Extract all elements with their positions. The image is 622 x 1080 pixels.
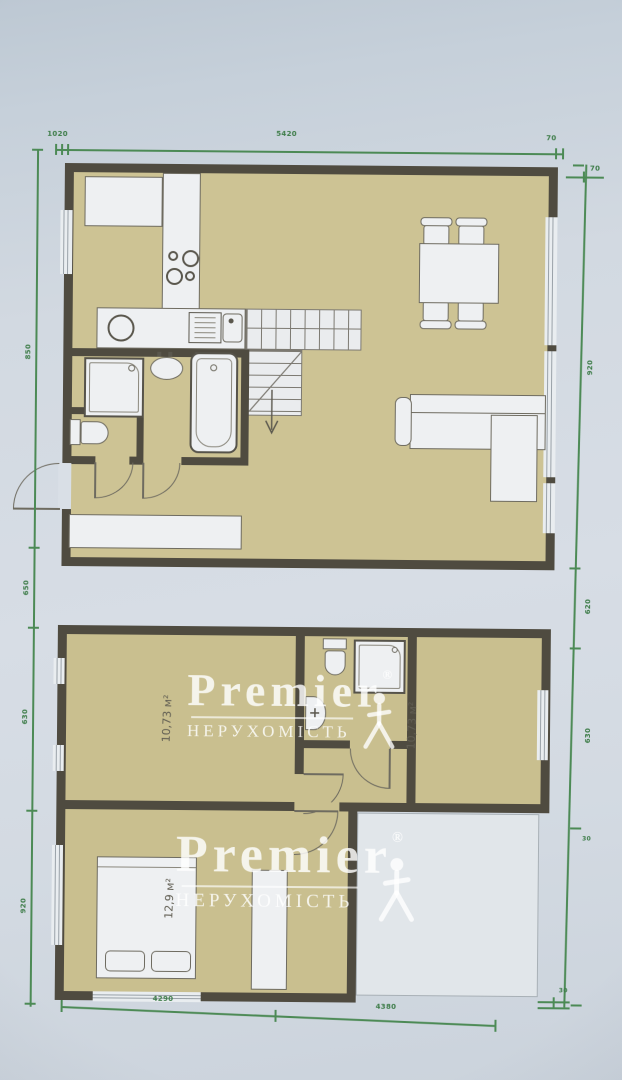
toilet-tank [323, 638, 347, 649]
window [51, 845, 63, 945]
interior-wall [304, 740, 350, 748]
dimension-tick [555, 148, 557, 159]
dining-table [419, 243, 500, 304]
chair-back [420, 320, 452, 329]
tap [157, 352, 161, 357]
dimension-tick [553, 997, 555, 1009]
entry-opening [58, 463, 71, 509]
dimension-tick [562, 148, 564, 159]
stairs-direction-arrow [243, 346, 308, 439]
window [53, 658, 64, 684]
washing-machine [107, 314, 134, 341]
shower-drain [128, 365, 135, 372]
window [53, 745, 64, 771]
dimension-tick [28, 627, 39, 629]
bathtub-faucet [210, 364, 217, 371]
chair-back [455, 217, 487, 226]
chair-back [420, 217, 452, 226]
floor-plan-photo: 10,73 м² 10,73 м² 12,9 м² 1020 5420 70 7… [0, 0, 622, 1080]
dimension-label: 1020 [47, 130, 68, 138]
stove-burner [166, 268, 183, 285]
dimension-tick [26, 810, 37, 812]
pillow [151, 951, 191, 972]
dimension-label: 650 [22, 580, 30, 596]
chair [458, 301, 484, 321]
entry-door-swing [13, 463, 59, 509]
interior-wall [181, 457, 240, 466]
room-area-label: 12,9 м² [162, 866, 178, 931]
dimension-label: 620 [584, 599, 592, 615]
dimension-label: 30 [582, 836, 591, 843]
dimension-tick [61, 144, 63, 155]
dimension-label: 630 [21, 709, 29, 725]
dimension-tick [494, 1020, 496, 1032]
dimension-label: 5420 [276, 130, 297, 138]
pillow [105, 950, 145, 971]
window [537, 690, 549, 760]
toilet [325, 650, 346, 675]
room-area-label: 10,73 м² [404, 693, 420, 758]
dimension-label: 920 [19, 898, 27, 914]
dimension-label: 920 [586, 360, 594, 376]
terrace [356, 813, 540, 998]
dimension-label: 4290 [153, 995, 174, 1003]
shower-cabin [84, 357, 145, 418]
dimension-line-right [563, 165, 587, 1008]
dimension-tick [55, 144, 57, 155]
sink-drainer [188, 312, 221, 343]
door-opening [294, 774, 303, 804]
tap [310, 708, 319, 717]
stove-burner [185, 271, 195, 281]
window [60, 210, 73, 274]
dimension-tick [29, 547, 40, 549]
sofa-chaise [490, 415, 538, 502]
dimension-tick [61, 1000, 63, 1012]
dimension-tick [67, 144, 69, 155]
sink-tap [229, 318, 234, 323]
window [544, 217, 557, 345]
dimension-label: 4380 [376, 1003, 397, 1011]
stove-burner [182, 250, 199, 267]
entry-door-leaf [13, 508, 60, 510]
dimension-tick [274, 1010, 276, 1022]
dimension-tick [573, 164, 584, 166]
interior-wall [240, 350, 249, 466]
chair [423, 301, 449, 321]
kitchen-cabinet [84, 176, 162, 227]
dimension-line-top [55, 149, 563, 155]
toilet-tank [70, 419, 81, 445]
wash-basin [150, 357, 183, 380]
kitchen-sink [222, 313, 242, 342]
dimension-label: 630 [584, 728, 592, 744]
stove-burner [168, 251, 178, 261]
dimension-label: 30 [559, 987, 568, 994]
tap [168, 352, 172, 357]
dimension-tick [571, 1004, 582, 1006]
chair-back [455, 320, 487, 329]
dimension-line-bottom [61, 1006, 497, 1027]
hallway-cabinet [69, 514, 242, 550]
dimension-tick [25, 1003, 36, 1005]
stairs-upper-flight [245, 309, 361, 351]
dimension-tick [569, 567, 580, 569]
toilet [81, 421, 109, 444]
shower-drain [392, 647, 398, 653]
dimension-label: 70 [546, 134, 556, 142]
dimension-tick [32, 149, 43, 151]
dimension-tick [570, 647, 581, 649]
dimension-label: 850 [24, 344, 32, 360]
room-area-label: 10,73 м² [159, 686, 175, 751]
plan-sheet: 10,73 м² 10,73 м² 12,9 м² 1020 5420 70 7… [0, 0, 622, 1080]
shower-cabin [353, 640, 405, 694]
dimension-label: 70 [590, 165, 600, 173]
wardrobe [251, 870, 288, 990]
dimension-tick [570, 827, 581, 829]
window [543, 483, 555, 533]
dimension-line-left [30, 149, 39, 1007]
sofa-armrest [395, 397, 412, 446]
window [93, 991, 201, 1002]
